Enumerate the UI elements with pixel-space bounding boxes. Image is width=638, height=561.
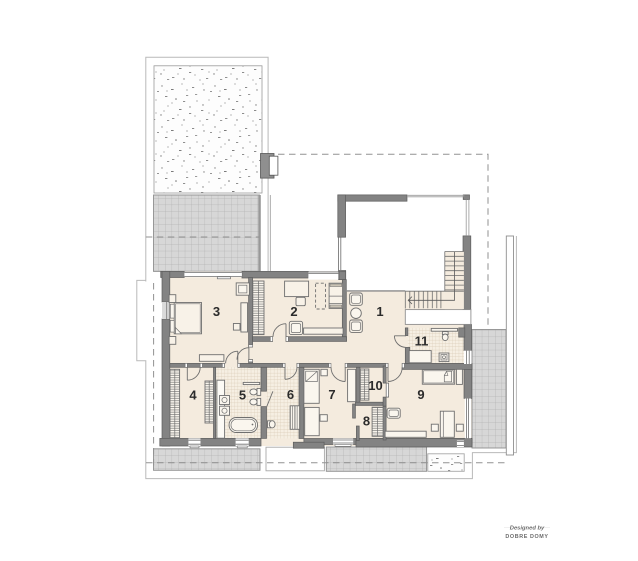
svg-text:4: 4	[189, 388, 197, 403]
svg-text:Designed by: Designed by	[510, 526, 545, 532]
svg-text:6: 6	[287, 387, 294, 402]
svg-text:1: 1	[376, 304, 383, 319]
svg-text:2: 2	[290, 304, 297, 319]
svg-text:7: 7	[328, 387, 335, 402]
svg-text:9: 9	[417, 387, 424, 402]
svg-text:11: 11	[415, 334, 429, 349]
svg-text:3: 3	[213, 304, 220, 319]
svg-text:DOBRE DOMY: DOBRE DOMY	[505, 534, 548, 540]
svg-text:5: 5	[239, 388, 246, 403]
svg-text:10: 10	[368, 378, 382, 393]
svg-text:8: 8	[363, 414, 370, 429]
